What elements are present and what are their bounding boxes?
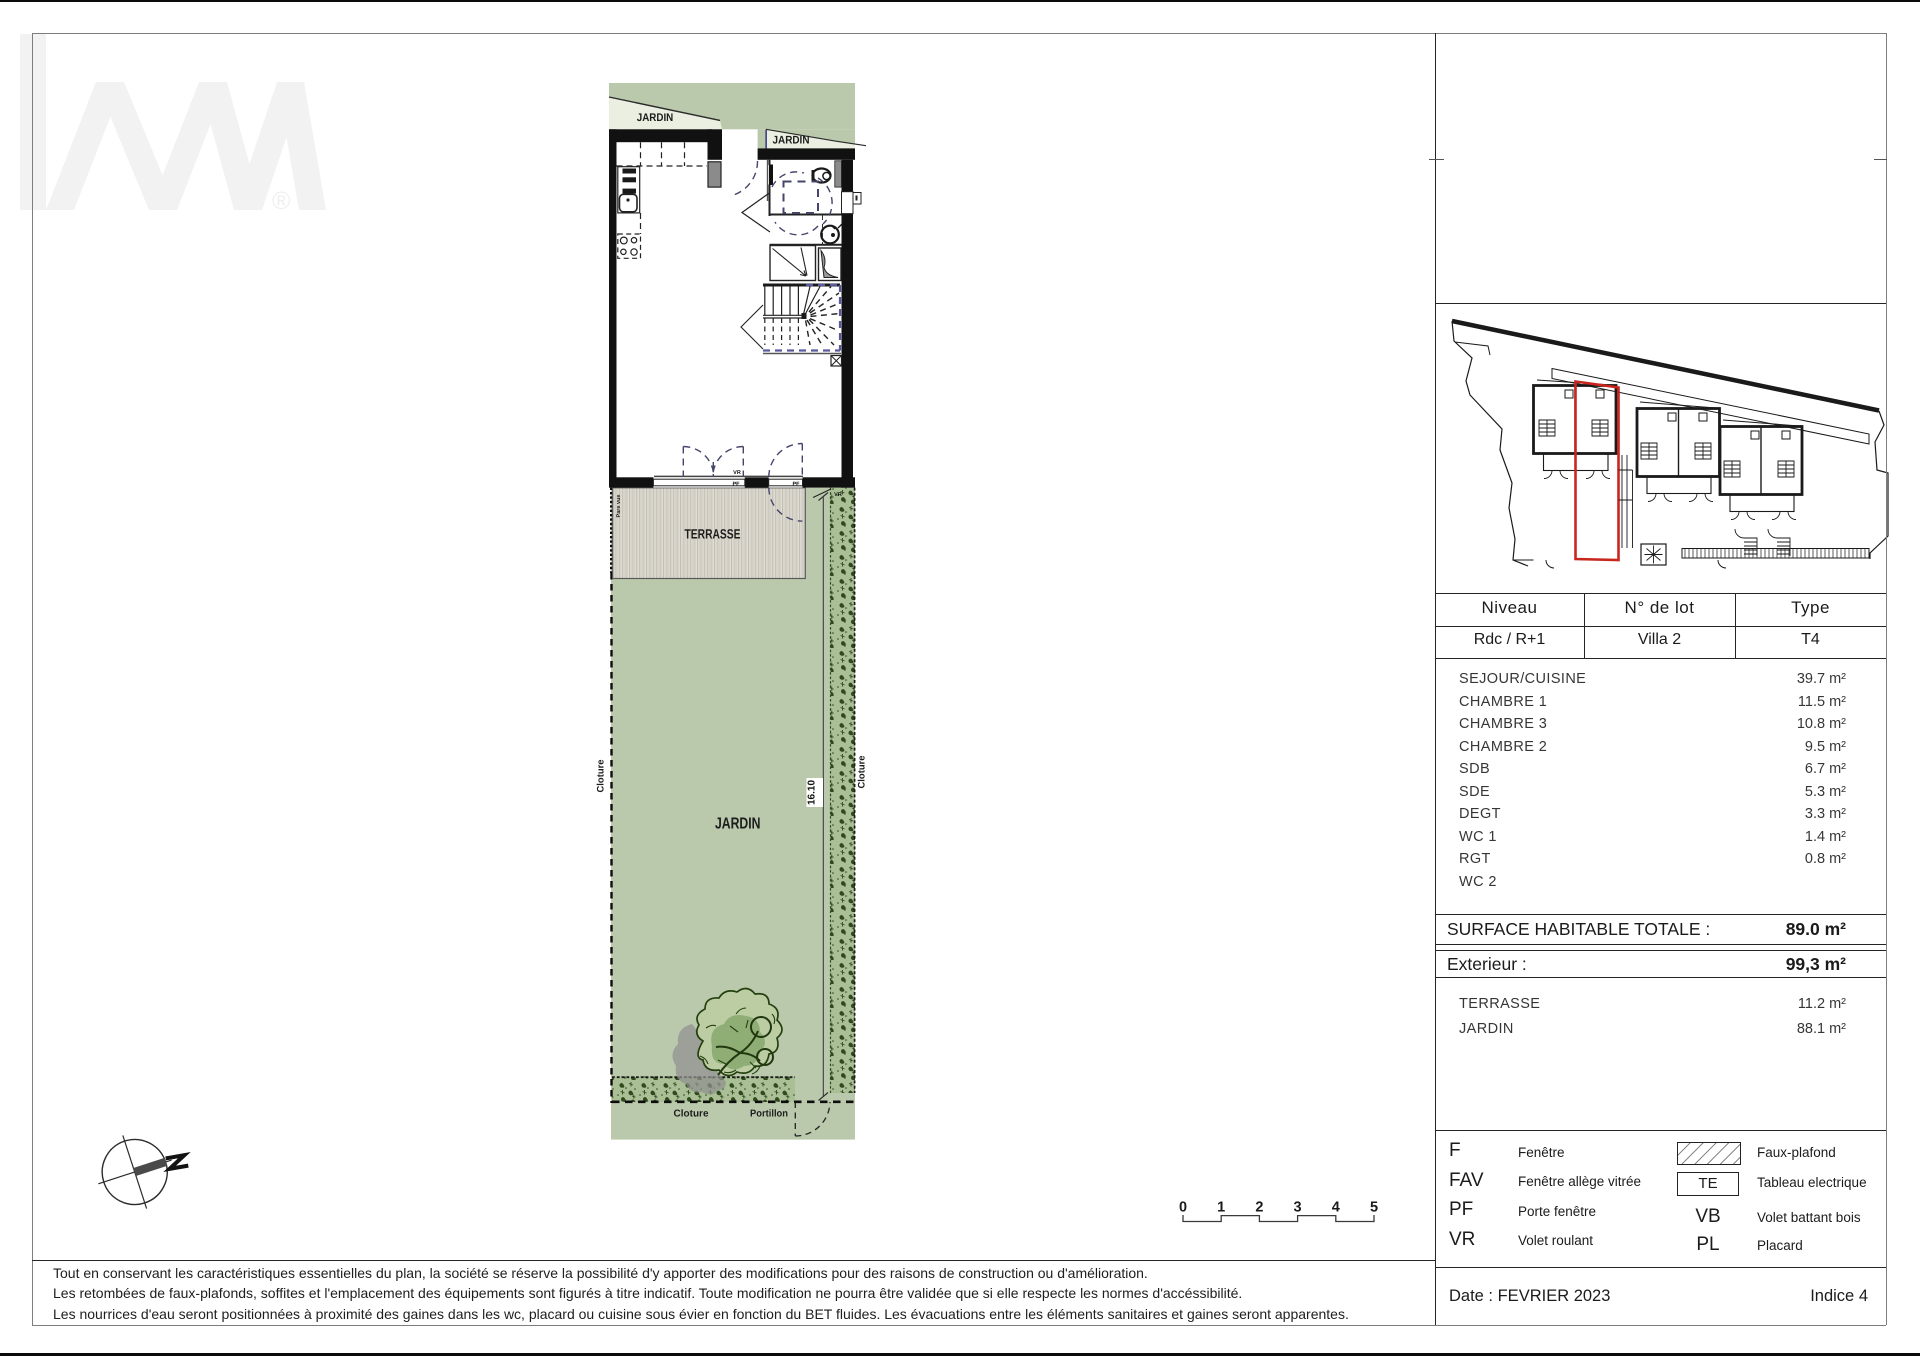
svg-text:1: 1 (1217, 1200, 1225, 1216)
svg-text:PF: PF (792, 482, 800, 488)
svg-text:5: 5 (1370, 1200, 1378, 1216)
svg-text:Cloture: Cloture (674, 1108, 709, 1119)
svg-text:Portillon: Portillon (750, 1108, 788, 1119)
svg-text:VR: VR (733, 470, 741, 476)
svg-text:PF: PF (732, 482, 740, 488)
svg-text:Cloture: Cloture (857, 756, 868, 789)
svg-text:0: 0 (1179, 1200, 1187, 1216)
svg-text:4: 4 (1332, 1200, 1340, 1216)
svg-text:®: ® (272, 187, 291, 215)
svg-text:JARDIN: JARDIN (715, 816, 761, 833)
svg-text:TERRASSE: TERRASSE (685, 527, 741, 542)
svg-text:16.10: 16.10 (807, 780, 818, 805)
svg-text:JARDIN: JARDIN (637, 112, 674, 124)
svg-text:Pare vue: Pare vue (616, 495, 622, 518)
svg-text:3: 3 (1294, 1200, 1302, 1216)
svg-text:Cloture: Cloture (596, 760, 607, 793)
svg-text:VR: VR (834, 492, 842, 498)
svg-text:2: 2 (1255, 1200, 1263, 1216)
svg-text:JARDIN: JARDIN (773, 134, 810, 146)
